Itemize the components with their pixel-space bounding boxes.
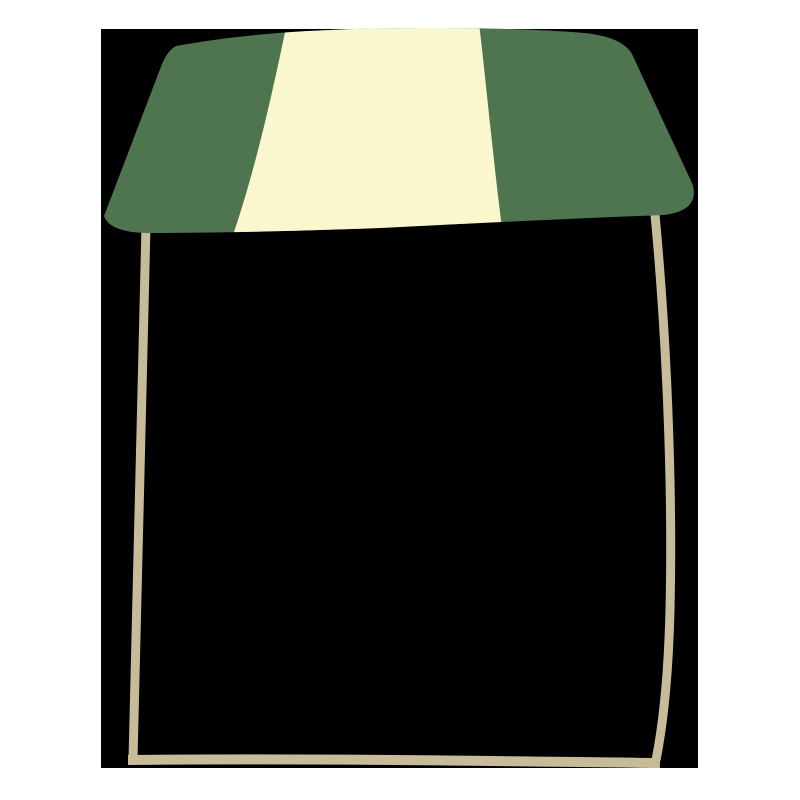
stall-canvas	[0, 0, 800, 800]
stall-illustration	[0, 0, 800, 800]
bottom-bar	[128, 759, 660, 763]
